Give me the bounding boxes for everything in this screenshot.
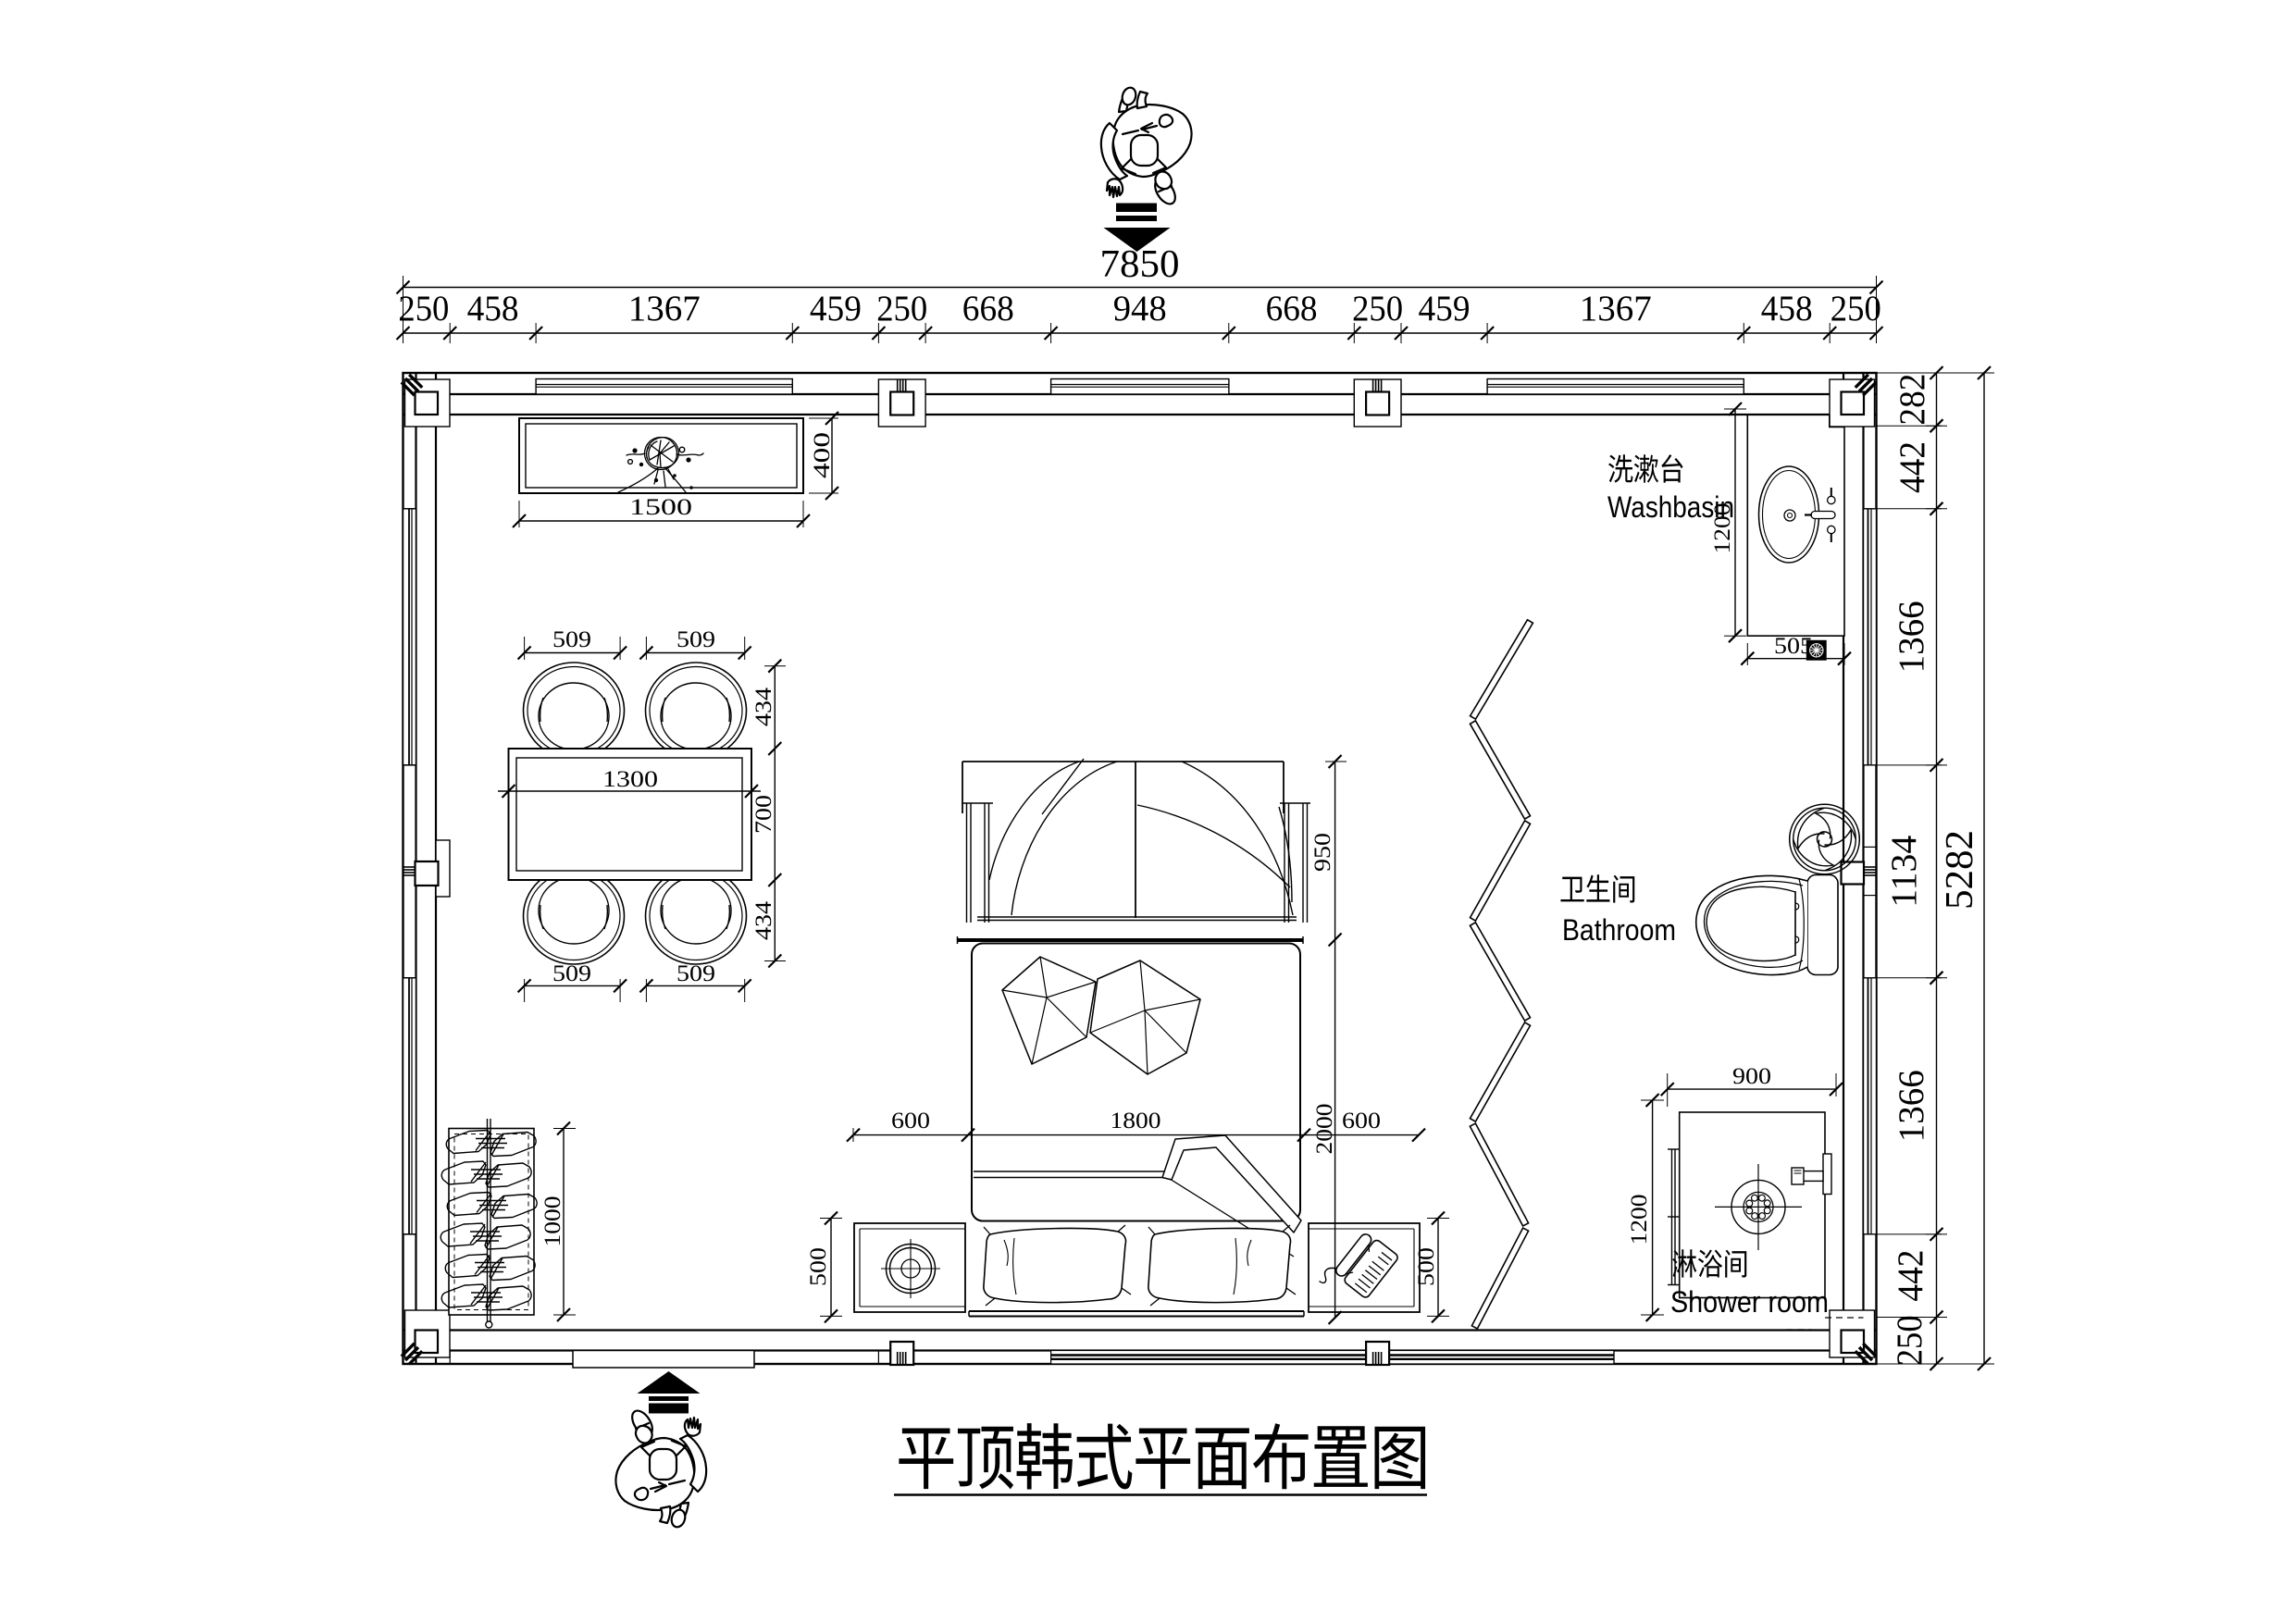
svg-text:950: 950 <box>1310 833 1335 872</box>
svg-text:1800: 1800 <box>1111 1109 1161 1134</box>
svg-text:509: 509 <box>552 961 591 986</box>
svg-text:434: 434 <box>751 900 776 940</box>
svg-text:668: 668 <box>962 289 1014 328</box>
svg-text:250: 250 <box>1352 289 1403 328</box>
svg-text:7850: 7850 <box>1100 243 1180 286</box>
svg-text:1366: 1366 <box>1892 601 1931 673</box>
svg-text:500: 500 <box>1414 1247 1439 1286</box>
svg-text:282: 282 <box>1893 374 1932 426</box>
svg-text:509: 509 <box>676 627 715 652</box>
svg-text:Bathroom: Bathroom <box>1562 913 1676 947</box>
svg-text:458: 458 <box>467 289 519 328</box>
svg-text:Shower room: Shower room <box>1670 1285 1829 1319</box>
svg-text:5282: 5282 <box>1939 830 1981 910</box>
svg-text:250: 250 <box>398 289 449 328</box>
svg-text:400: 400 <box>810 432 835 478</box>
svg-text:1134: 1134 <box>1884 836 1924 908</box>
svg-text:509: 509 <box>552 627 591 652</box>
svg-text:1200: 1200 <box>1627 1195 1652 1245</box>
svg-text:459: 459 <box>1419 289 1471 328</box>
svg-text:668: 668 <box>1266 289 1318 328</box>
svg-text:250: 250 <box>1890 1315 1930 1366</box>
svg-text:2000: 2000 <box>1312 1104 1337 1155</box>
svg-text:1367: 1367 <box>628 289 701 328</box>
svg-text:442: 442 <box>1891 1250 1930 1302</box>
svg-text:1367: 1367 <box>1580 289 1652 328</box>
svg-text:1300: 1300 <box>602 767 658 792</box>
svg-text:250: 250 <box>1831 289 1881 328</box>
svg-text:250: 250 <box>876 289 927 328</box>
svg-text:458: 458 <box>1761 289 1813 328</box>
svg-text:1500: 1500 <box>629 495 692 520</box>
svg-text:509: 509 <box>676 961 715 986</box>
svg-text:1000: 1000 <box>540 1196 565 1247</box>
svg-text:1366: 1366 <box>1892 1070 1931 1142</box>
svg-text:459: 459 <box>810 289 862 328</box>
svg-text:442: 442 <box>1893 441 1932 493</box>
svg-text:434: 434 <box>751 687 776 726</box>
svg-text:700: 700 <box>751 795 776 834</box>
svg-text:500: 500 <box>806 1247 831 1286</box>
svg-text:Washbasin: Washbasin <box>1607 490 1734 524</box>
svg-text:900: 900 <box>1732 1064 1771 1089</box>
svg-text:600: 600 <box>1342 1109 1381 1134</box>
svg-text:600: 600 <box>891 1109 930 1134</box>
svg-text:948: 948 <box>1113 289 1167 328</box>
